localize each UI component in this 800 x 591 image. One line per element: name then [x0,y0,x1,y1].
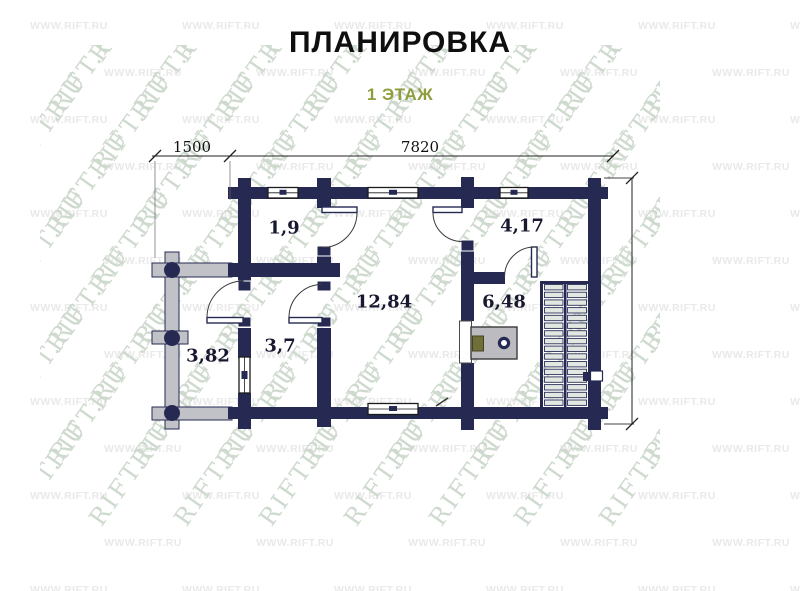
room-area-label: 4,17 [500,216,544,237]
dimension-label: 1500 [173,138,211,156]
floor-plan-page: WWW.RIFT.RUWWW.RIFT.RUWWW.RIFT.RUWWW.RIF… [0,0,800,591]
room-area-label: 6,48 [482,292,526,313]
room-area-label: 12,84 [356,292,412,313]
floor-subtitle: 1 ЭТАЖ [0,85,800,105]
room-area-label: 1,9 [268,218,299,239]
dimension-label: 7820 [401,138,439,156]
room-area-label: 3,82 [186,346,230,367]
footer: RIFT ДЕРЕВЯННЫЕ ДОМА И БАНИ Проект № ВМ2… [0,500,800,580]
page-title: ПЛАНИРОВКА [0,26,800,60]
room-area-label: 3,7 [264,336,295,357]
